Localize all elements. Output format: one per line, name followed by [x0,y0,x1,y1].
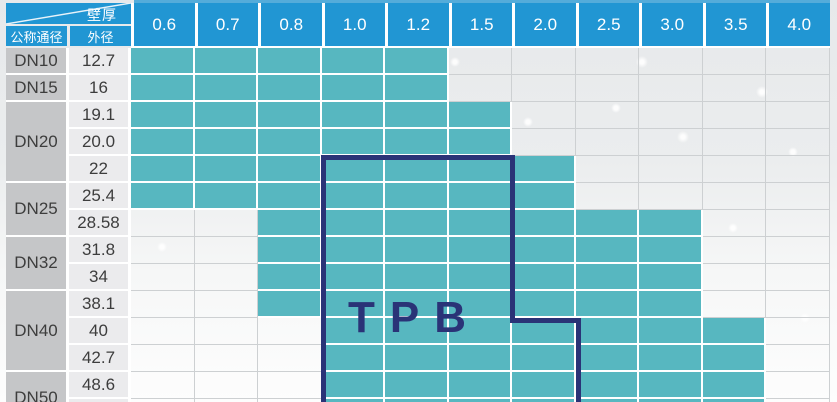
outer-diameter-value: 42.7 [69,345,131,372]
availability-cell-available [449,129,513,156]
availability-cell-available [512,372,576,399]
availability-cell-empty [639,48,703,75]
pipe-size-availability-table: 壁厚 公称通径 外径 0.60.70.81.01.21.52.02.53.03.… [0,0,837,402]
availability-cell-available [131,156,195,183]
availability-cell-available [322,75,386,102]
availability-cell-empty [639,102,703,129]
availability-cell-available [639,372,703,399]
availability-cell-available [449,156,513,183]
availability-cell-available [639,291,703,318]
availability-cell-empty [766,183,830,210]
header-corner-diagonal-cell: 壁厚 [6,3,131,24]
availability-cell-empty [258,345,322,372]
availability-cell-available [639,237,703,264]
availability-cell-empty [512,102,576,129]
availability-cell-available [195,183,259,210]
availability-cell-available [512,345,576,372]
availability-cell-available [512,156,576,183]
dn-group-label: DN10 [6,48,69,75]
outer-diameter-value: 34 [69,264,131,291]
availability-cell-empty [766,318,830,345]
availability-cell-available [258,210,322,237]
tpb-outline-step [510,318,581,323]
availability-cell-available [576,291,640,318]
availability-cell-available [322,345,386,372]
availability-cell-empty [703,129,767,156]
availability-cell-available [322,372,386,399]
thickness-header-cell: 0.8 [258,3,322,48]
availability-cell-empty [131,318,195,345]
availability-cell-available [195,48,259,75]
thickness-header-cell: 0.7 [195,3,259,48]
availability-cell-available [639,318,703,345]
availability-cell-empty [703,264,767,291]
outer-diameter-label: 外径 [70,26,131,46]
availability-cell-available [258,102,322,129]
availability-cell-available [385,129,449,156]
availability-cell-available [131,102,195,129]
availability-cell-available [322,183,386,210]
availability-cell-available [258,75,322,102]
availability-cell-available [195,129,259,156]
availability-cell-available [322,48,386,75]
availability-cell-available [258,264,322,291]
availability-cell-available [322,210,386,237]
availability-cell-empty [131,264,195,291]
availability-cell-empty [131,291,195,318]
availability-cell-empty [766,102,830,129]
availability-cell-available [449,345,513,372]
availability-cell-empty [131,372,195,399]
outer-diameter-value: 48.6 [69,372,131,399]
outer-diameter-value: 20.0 [69,129,131,156]
availability-cell-empty [576,129,640,156]
availability-cell-empty [639,75,703,102]
outer-diameter-value: 28.58 [69,210,131,237]
thickness-header-cell: 1.5 [449,3,513,48]
availability-cell-empty [639,183,703,210]
availability-cell-available [131,48,195,75]
outer-diameter-value: 12.7 [69,48,131,75]
availability-cell-available [639,264,703,291]
availability-cell-empty [195,264,259,291]
tpb-outline-top [321,155,515,160]
availability-cell-empty [195,372,259,399]
availability-cell-empty [766,129,830,156]
outer-diameter-value: 38.1 [69,291,131,318]
availability-cell-available [703,345,767,372]
availability-cell-available [449,264,513,291]
availability-cell-empty [766,291,830,318]
availability-cell-empty [703,48,767,75]
availability-cell-empty [195,237,259,264]
availability-cell-available [385,183,449,210]
dn-group-label: DN25 [6,183,69,237]
availability-cell-available [131,75,195,102]
availability-cell-empty [703,183,767,210]
availability-cell-empty [766,210,830,237]
availability-cell-available [385,264,449,291]
tpb-outline-right-upper [510,155,515,323]
availability-cell-empty [703,156,767,183]
availability-cell-empty [766,156,830,183]
availability-cell-available [385,102,449,129]
availability-cell-empty [449,48,513,75]
availability-cell-empty [639,156,703,183]
availability-cell-available [703,318,767,345]
dn-group-label: DN40 [6,291,69,372]
availability-cell-available [512,291,576,318]
availability-cell-available [385,372,449,399]
availability-cell-available [449,372,513,399]
availability-cell-empty [195,318,259,345]
availability-cell-available [385,156,449,183]
availability-cell-available [131,129,195,156]
availability-cell-available [385,237,449,264]
dn-group-label: DN15 [6,75,69,102]
tpb-watermark: TPB [348,296,481,340]
thickness-header-cell: 0.6 [131,3,195,48]
availability-cell-empty [195,345,259,372]
availability-cell-available [639,210,703,237]
availability-cell-available [449,102,513,129]
availability-cell-available [258,291,322,318]
wall-thickness-label: 壁厚 [87,5,117,25]
availability-cell-available [576,372,640,399]
availability-cell-empty [766,75,830,102]
availability-cell-available [449,237,513,264]
outer-diameter-value: 40 [69,318,131,345]
availability-cell-available [512,264,576,291]
availability-cell-available [385,75,449,102]
outer-diameter-value: 25.4 [69,183,131,210]
availability-cell-available [258,183,322,210]
availability-cell-empty [703,102,767,129]
thickness-header-cell: 3.5 [703,3,767,48]
availability-cell-available [258,129,322,156]
availability-cell-available [322,129,386,156]
availability-cell-empty [766,237,830,264]
availability-cell-available [322,156,386,183]
availability-cell-empty [131,210,195,237]
tpb-outline-left [321,155,326,402]
availability-cell-available [258,156,322,183]
tpb-outline-right-lower [576,318,581,402]
thickness-header-cell: 2.0 [512,3,576,48]
availability-cell-available [385,48,449,75]
availability-cell-empty [131,237,195,264]
outer-diameter-value: 19.1 [69,102,131,129]
outer-diameter-value: 16 [69,75,131,102]
availability-cell-available [195,102,259,129]
availability-cell-empty [703,237,767,264]
availability-cell-available [639,345,703,372]
availability-cell-empty [576,102,640,129]
availability-cell-empty [766,48,830,75]
availability-cell-available [449,183,513,210]
thickness-header-cell: 4.0 [766,3,830,48]
thickness-header-cell: 1.0 [322,3,386,48]
availability-cell-empty [195,291,259,318]
dn-group-label: DN32 [6,237,69,291]
availability-cell-empty [766,345,830,372]
availability-cell-empty [258,318,322,345]
availability-cell-available [449,210,513,237]
availability-cell-empty [258,372,322,399]
dn-group-label: DN20 [6,102,69,183]
availability-cell-empty [195,210,259,237]
availability-cell-available [576,237,640,264]
availability-cell-available [131,183,195,210]
availability-cell-available [512,210,576,237]
availability-cell-available [195,156,259,183]
header-corner: 壁厚 公称通径 外径 [6,3,131,48]
availability-cell-empty [703,210,767,237]
availability-cell-available [576,210,640,237]
availability-cell-empty [512,75,576,102]
availability-cell-available [322,264,386,291]
availability-cell-empty [639,129,703,156]
availability-cell-available [576,345,640,372]
availability-cell-empty [766,264,830,291]
availability-cell-available [703,372,767,399]
thickness-header-cell: 3.0 [639,3,703,48]
availability-cell-empty [703,291,767,318]
availability-cell-available [576,264,640,291]
availability-cell-available [385,210,449,237]
availability-cell-available [195,75,259,102]
availability-cell-empty [766,372,830,399]
spec-table-grid: 壁厚 公称通径 外径 0.60.70.81.01.21.52.02.53.03.… [6,3,830,402]
availability-cell-available [258,237,322,264]
availability-cell-empty [512,129,576,156]
availability-cell-available [322,102,386,129]
availability-cell-empty [576,75,640,102]
thickness-header-cell: 1.2 [385,3,449,48]
availability-cell-available [512,183,576,210]
availability-cell-empty [576,156,640,183]
availability-cell-available [322,237,386,264]
thickness-header-cell: 2.5 [576,3,640,48]
availability-cell-available [576,318,640,345]
availability-cell-empty [576,183,640,210]
dn-group-label: DN50 [6,372,69,402]
availability-cell-available [385,345,449,372]
availability-cell-empty [703,75,767,102]
availability-cell-empty [576,48,640,75]
availability-cell-available [512,237,576,264]
availability-cell-empty [449,75,513,102]
outer-diameter-value: 31.8 [69,237,131,264]
availability-cell-empty [512,48,576,75]
outer-diameter-value: 22 [69,156,131,183]
availability-cell-available [258,48,322,75]
nominal-diameter-label: 公称通径 [6,26,67,46]
availability-cell-empty [131,345,195,372]
